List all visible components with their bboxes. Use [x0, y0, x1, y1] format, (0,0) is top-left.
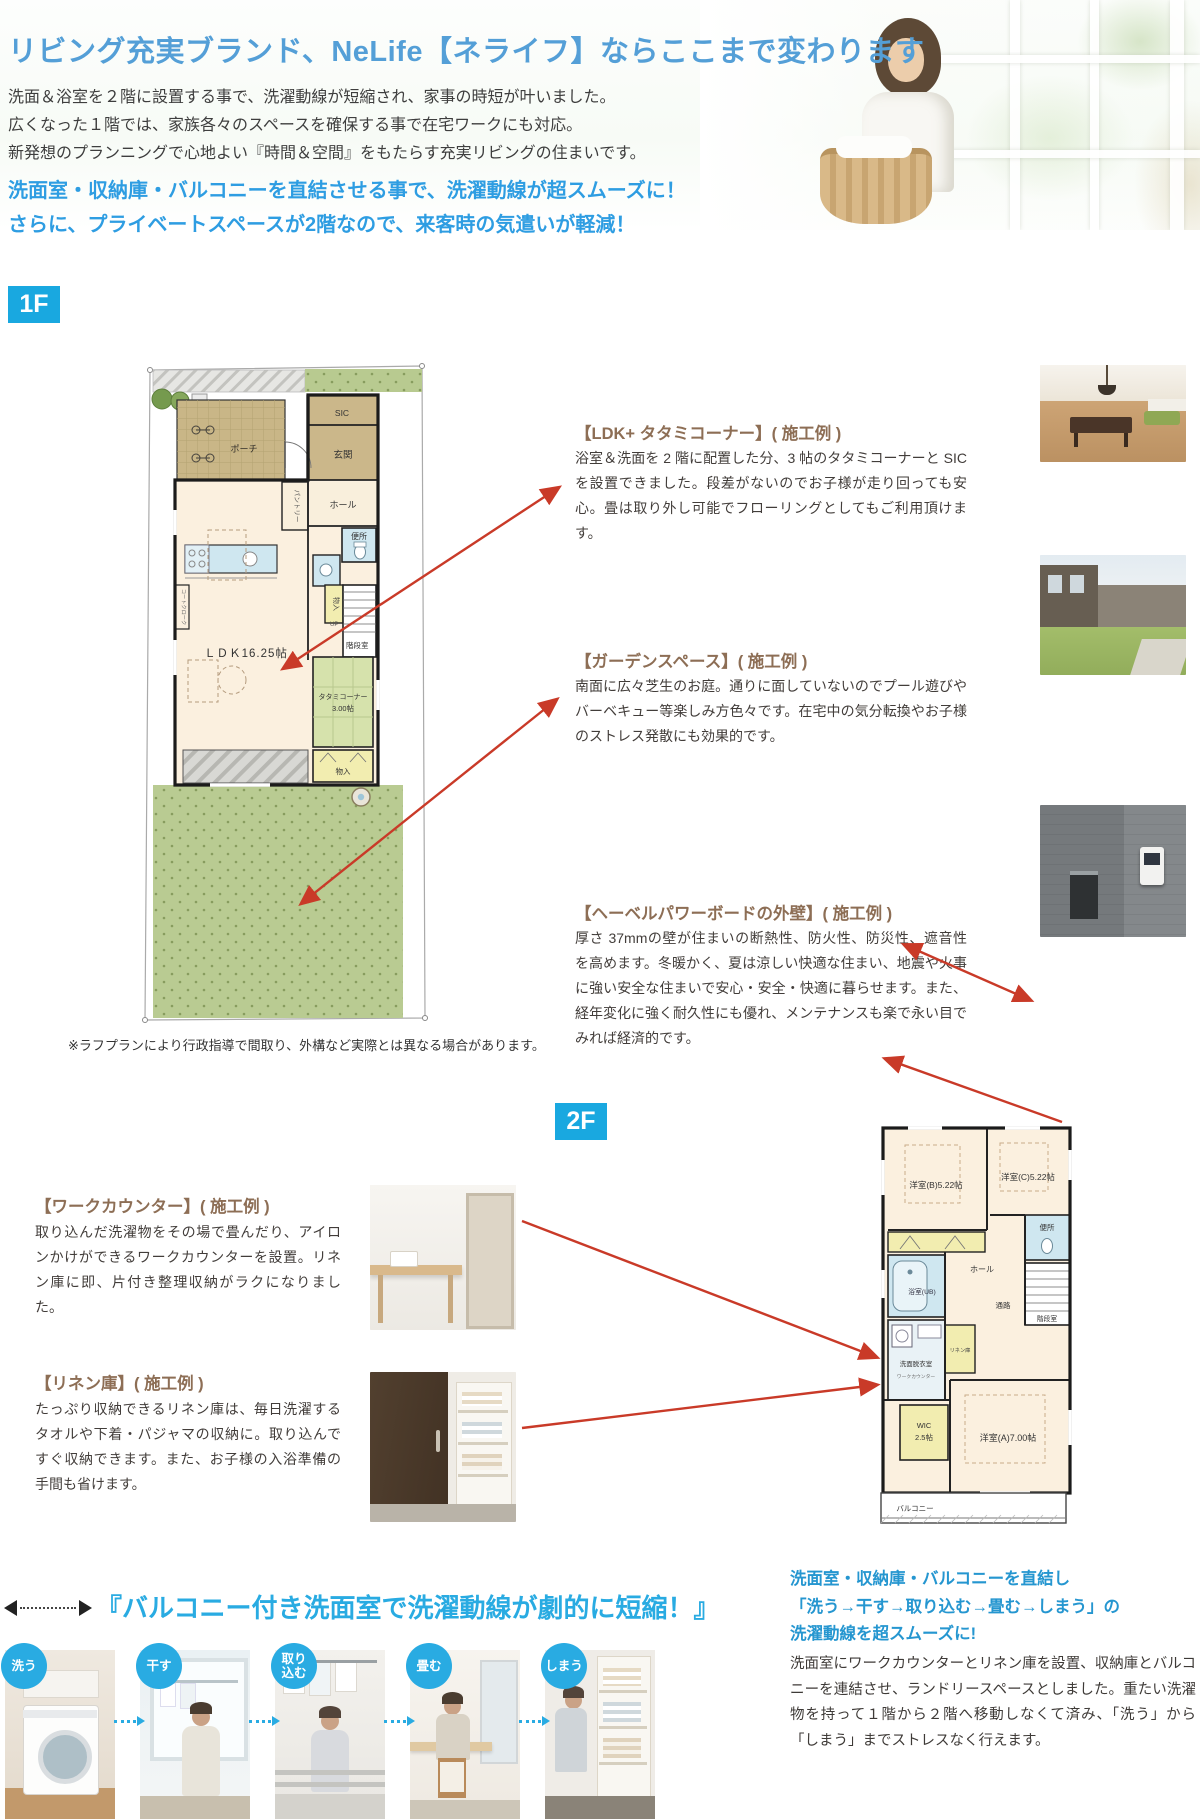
label-wic-size: 2.5帖	[915, 1432, 933, 1442]
floor-badge-2f: 2F	[555, 1103, 607, 1140]
label-stairs-1f: 階段室	[346, 640, 369, 650]
balcony: バルコニー	[881, 1493, 1066, 1523]
label-ldk: ＬＤＫ16.25帖	[204, 646, 288, 660]
lead-line: 洗面室・収納庫・バルコニーを直結し	[790, 1566, 1120, 1594]
step-arrow-icon	[249, 1720, 271, 1723]
room-storage-1: 物入	[325, 585, 343, 623]
step-badge-hang: 干す	[136, 1643, 182, 1689]
intro-text: 洗面＆浴室を２階に設置する事で、洗濯動線が短縮され、家事の時短が叶いました。 広…	[8, 84, 646, 168]
label-linen: リネン庫	[950, 1346, 971, 1354]
room-washroom: 洗面脱衣室 ワークカウンター	[888, 1320, 945, 1400]
room-bath: 浴室(UB)	[888, 1255, 945, 1317]
highlight-line-2: さらに、プライベートスペースが2階なので、来客時の気遣いが軽減！	[8, 208, 635, 237]
label-toilet-1f: 便所	[351, 531, 367, 541]
front-green-strip	[305, 369, 422, 392]
intro-line: 広くなった１階では、家族各々のスペースを確保する事で在宅ワークにも対応。	[8, 112, 646, 140]
bottom-body: 洗面室にワークカウンターとリネン庫を設置、収納庫とバルコニーを連結させ、ランドリ…	[790, 1652, 1196, 1754]
step-badge-wash: 洗う	[1, 1643, 47, 1689]
feature-body-work-counter: 取り込んだ洗濯物をその場で畳んだり、アイロンかけができるワークカウンターを設置。…	[35, 1220, 341, 1320]
room-coat-closet: コートクローク	[175, 585, 189, 629]
label-room-b: 洋室(B)5.22帖	[909, 1180, 963, 1190]
label-storage1: 物入	[332, 597, 341, 611]
feature-heading-garden: 【ガーデンスペース】( 施工例 )	[575, 648, 807, 672]
room-hall-2f: ホール	[970, 1265, 994, 1274]
room-pantry: パントリー	[282, 482, 308, 530]
page-title: リビング充実ブランド、NeLife【ネライフ】ならここまで変わります	[8, 28, 924, 70]
highlight-line-1: 洗面室・収納庫・バルコニーを直結させる事で、洗濯動線が超スムーズに！	[8, 174, 686, 203]
dotted-line	[20, 1607, 76, 1609]
room-linen: リネン庫	[945, 1325, 975, 1373]
label-room-a: 洋室(A)7.00帖	[980, 1432, 1037, 1443]
label-washroom: 洗面脱衣室	[900, 1359, 933, 1368]
label-wic-name: WIC	[917, 1421, 932, 1430]
step-badge-put-away: しまう	[541, 1643, 587, 1689]
washstand-1f	[313, 555, 340, 586]
room-stairs-2f: 階段室	[1025, 1263, 1070, 1325]
photo-exterior-wall-powerboard	[1040, 805, 1186, 937]
wood-deck	[183, 750, 308, 783]
bottom-lead: 洗面室・収納庫・バルコニーを直結し 「洗う→干す→取り込む→畳む→しまう」の 洗…	[790, 1566, 1120, 1649]
laundry-basket	[820, 148, 932, 224]
flyer-page: リビング充実ブランド、NeLife【ネライフ】ならここまで変わります 洗面＆浴室…	[0, 0, 1200, 1819]
plan-disclaimer: ※ラフプランにより行政指導で間取り、外構など実際とは異なる場合があります。	[68, 1035, 545, 1054]
label-porch: ポーチ	[230, 444, 257, 454]
arrow-right-icon	[79, 1600, 92, 1616]
lead-line: 洗濯動線を超スムーズに!	[790, 1621, 1120, 1649]
step-badge-fold: 畳む	[406, 1643, 452, 1689]
room-storage-2: 物入	[313, 750, 373, 782]
photo-ldk-interior	[1040, 365, 1186, 462]
photo-work-counter	[370, 1185, 516, 1330]
photo-linen-closet	[370, 1372, 516, 1522]
room-wic: WIC 2.5帖	[900, 1405, 948, 1460]
room-toilet: 便所	[342, 528, 376, 562]
label-stairs-2f: 階段室	[1037, 1314, 1058, 1323]
intro-line: 洗面＆浴室を２階に設置する事で、洗濯動線が短縮され、家事の時短が叶いました。	[8, 84, 646, 112]
arrow-work-counter	[522, 1221, 876, 1357]
label-pantry: パントリー	[293, 490, 301, 523]
lead-line: 「洗う→干す→取り込む→畳む→しまう」の	[790, 1594, 1120, 1622]
arrow-linen	[522, 1385, 876, 1428]
towel-in-basket	[836, 136, 912, 158]
feature-body-wall: 厚さ 37mmの壁が住まいの断熱性、防火性、防災性、遮音性を高めます。冬暖かく、…	[575, 926, 967, 1051]
label-room-c: 洋室(C)5.22帖	[1001, 1172, 1055, 1182]
label-storage2: 物入	[336, 766, 351, 776]
garden	[153, 785, 403, 1018]
room-toilet-2f: 便所	[1025, 1215, 1070, 1260]
feature-heading-ldk-tatami: 【LDK+ タタミコーナー】( 施工例 )	[575, 420, 841, 444]
feature-heading-wall: 【ヘーベルパワーボードの外壁】( 施工例 )	[575, 900, 892, 924]
step-badge-take-in: 取り 込む	[271, 1643, 317, 1689]
label-sic: SIC	[335, 408, 349, 418]
label-passage: 通路	[996, 1300, 1011, 1310]
room-tatami-corner: タタミコーナー 3.00帖	[313, 657, 373, 747]
intro-line: 新発想のプランニングで心地よい『時間＆空間』をもたらす充実リビングの住まいです。	[8, 140, 646, 168]
feature-heading-linen: 【リネン庫】( 施工例 )	[35, 1370, 204, 1394]
feature-body-ldk-tatami: 浴室＆洗面を 2 階に配置した分、3 帖のタタミコーナーと SIC を設置できま…	[575, 446, 967, 546]
label-hall: ホール	[329, 500, 356, 510]
step-arrow-icon	[114, 1720, 136, 1723]
bottom-title: 『バルコニー付き洗面室で洗濯動線が劇的に短縮！』	[96, 1588, 719, 1625]
step-arrow-icon	[519, 1720, 541, 1723]
driveway	[153, 370, 305, 392]
label-bath: 浴室(UB)	[908, 1287, 936, 1296]
label-up: UP	[330, 622, 338, 628]
label-tatami-size: 3.00帖	[332, 703, 355, 713]
feature-body-garden: 南面に広々芝生のお庭。通りに面していないのでプール遊びやバーベキュー等楽しみ方色…	[575, 674, 967, 749]
floorplan-2f: 洋室(B)5.22帖 洋室(C)5.22帖 浴室(UB) 洗面脱衣室 ワークカウ…	[860, 1120, 1075, 1530]
floor-badge-1f: 1F	[8, 286, 60, 323]
label-coat: コートクローク	[180, 589, 187, 625]
label-entrance: 玄関	[333, 449, 352, 461]
step-arrow-icon	[384, 1720, 406, 1723]
kitchen	[185, 545, 277, 578]
photo-garden-lawn	[1040, 555, 1186, 675]
closet-room-b	[888, 1232, 985, 1252]
label-toilet-2f: 便所	[1040, 1222, 1056, 1232]
arrow-left-icon	[4, 1600, 17, 1616]
label-balcony: バルコニー	[896, 1504, 933, 1513]
room-hall: ホール	[308, 480, 378, 526]
feature-heading-work-counter: 【ワークカウンター】( 施工例 )	[35, 1193, 270, 1217]
label-hall-2f: ホール	[970, 1265, 994, 1274]
floorplan-1f: ポーチ SIC 玄関 ホール パントリー 便所	[120, 330, 430, 1030]
porch: ポーチ	[177, 400, 285, 487]
arrow-wall-2f	[886, 1059, 1062, 1122]
label-work-counter: ワークカウンター	[897, 1373, 936, 1380]
feature-body-linen: たっぷり収納できるリネン庫は、毎日洗濯するタオルや下着・パジャマの収納に。取り込…	[35, 1397, 341, 1497]
title-flow-arrows	[4, 1600, 92, 1616]
label-tatami-name: タタミコーナー	[319, 692, 368, 701]
